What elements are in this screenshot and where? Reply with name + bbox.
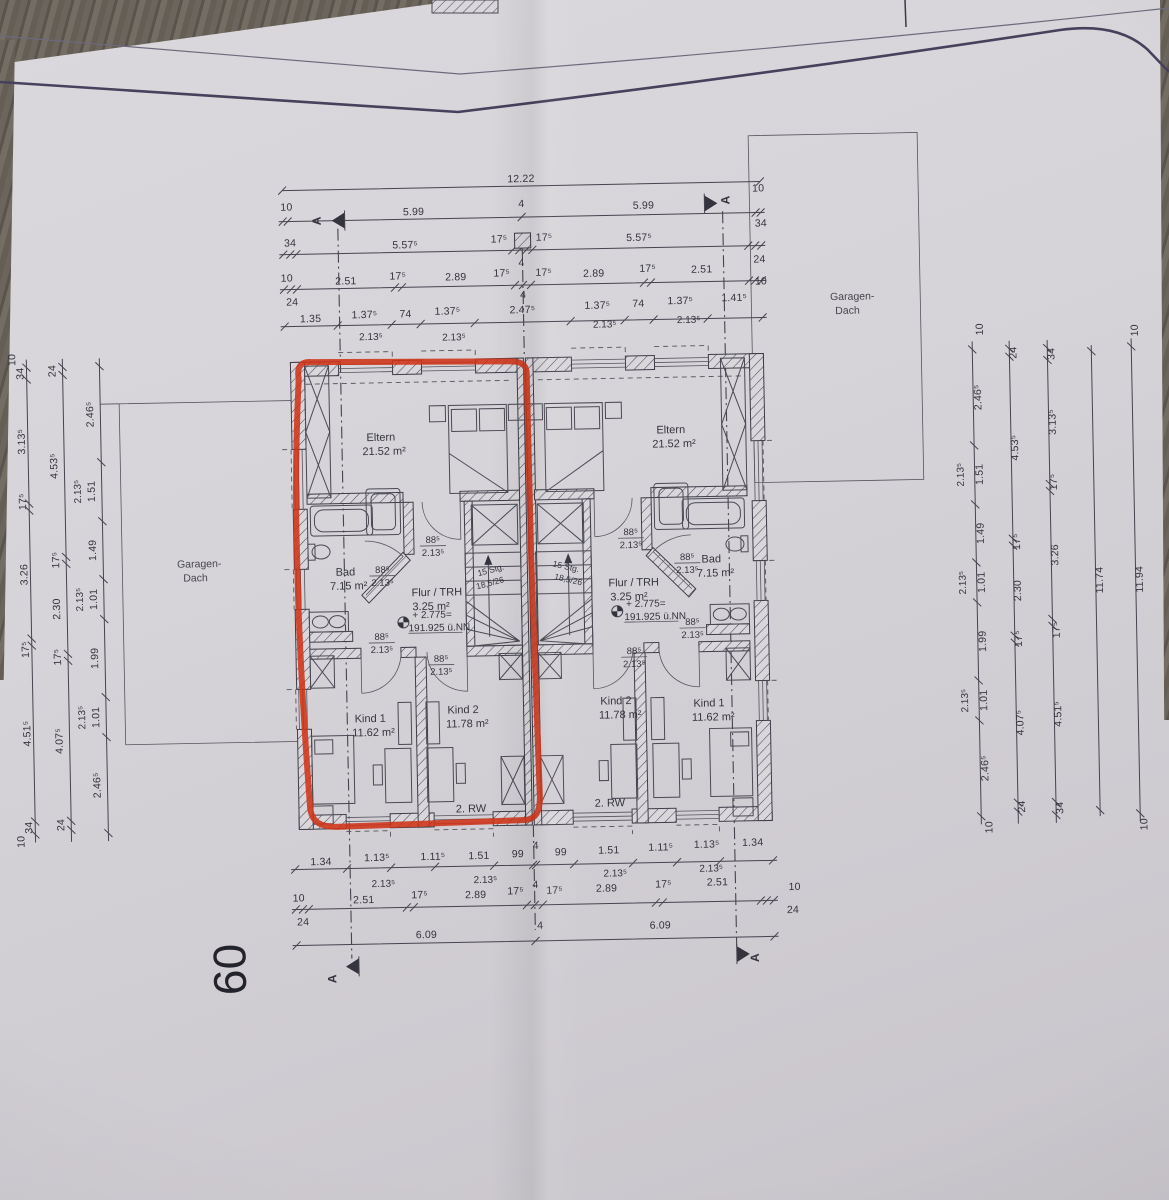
dim-label: 10	[1129, 324, 1141, 336]
dim-label: 1.11⁵	[648, 841, 673, 853]
handwritten-number: 09	[204, 943, 257, 995]
room-name: Kind 2	[600, 695, 631, 708]
room-area: 21.52 m²	[362, 445, 406, 458]
door-width: 88⁵	[374, 632, 389, 643]
door-height: 2.13⁵	[681, 630, 704, 641]
dim-label: 11.74	[1093, 567, 1106, 594]
dim-label: 34	[1045, 348, 1057, 360]
dim-label: 4.51⁵	[1052, 701, 1064, 727]
dim-label: 2.51	[335, 275, 356, 287]
dimension-labels-left: 34 3.13⁵ 17⁵ 3.26 17⁵ 4.51⁵ 34 24 4.53⁵ …	[6, 352, 104, 848]
dim-label: 10	[788, 881, 800, 893]
dim-label: 1.35	[300, 313, 321, 325]
dim-label: 1.99	[89, 648, 101, 669]
dim-label: 5.57⁵	[626, 232, 652, 244]
room-name: Kind 1	[693, 697, 724, 710]
door-height: 2.13⁵	[371, 578, 394, 589]
dim-label: 10	[752, 182, 764, 194]
dim-label: 10	[293, 892, 305, 904]
dim-label: 34	[23, 821, 35, 833]
dim-label: 1.41⁵	[721, 292, 747, 304]
dim-label: 17⁵	[1048, 473, 1060, 490]
dim-label: 17⁵	[17, 493, 29, 510]
dim-label: 17⁵	[491, 233, 508, 245]
dim-label: 2.30	[51, 598, 63, 619]
dim-label: 4	[520, 289, 526, 301]
dim-sublabel: 2.13⁵	[958, 571, 969, 595]
dim-label: 74	[632, 298, 644, 310]
dim-label: 24	[1016, 800, 1028, 812]
dim-label: 4.07⁵	[53, 728, 65, 754]
dim-label: 17⁵	[493, 267, 510, 279]
dim-label: 1.37⁵	[667, 295, 693, 307]
dim-label: 6.09	[650, 919, 671, 931]
plan: Garagen- Dach Garagen- Dach	[2, 128, 1153, 999]
dim-label: 1.11⁵	[420, 851, 445, 863]
room-area: 11.78 m²	[599, 709, 642, 722]
sheet-edge-lines	[0, 0, 1169, 112]
rw-label: 2. RW	[456, 803, 487, 816]
dim-label: 1.01	[978, 690, 990, 711]
dim-label: 1.37⁵	[434, 305, 460, 317]
dim-label: 4.53⁵	[48, 453, 60, 479]
dim-sublabel: 2.13⁵	[372, 879, 396, 890]
dim-label: 1.13⁵	[364, 852, 390, 864]
photo-of-floorplan: Garagen- Dach Garagen- Dach	[0, 0, 1169, 1200]
dim-label: 10	[6, 354, 18, 366]
door-width: 88⁵	[434, 654, 449, 665]
room-area: 11.78 m²	[446, 718, 489, 731]
dim-label: 5.57⁵	[392, 239, 418, 251]
dim-label: 1.51	[973, 464, 985, 485]
section-marker-label: A	[310, 216, 324, 225]
dim-label: 1.01	[88, 589, 100, 610]
room-area: 11.62 m²	[692, 711, 735, 724]
door-width: 88⁵	[685, 617, 700, 628]
dim-sublabel: 2.13⁵	[473, 875, 497, 886]
dim-sublabel: 2.13⁵	[77, 706, 88, 730]
dim-label: 34	[284, 237, 296, 249]
dim-label: 17⁵	[639, 263, 656, 275]
room-name: Bad	[336, 566, 356, 578]
garage-roof-label: Dach	[835, 305, 860, 317]
dim-sublabel: 2.13⁵	[603, 868, 627, 879]
dim-sublabel: 2.13⁵	[442, 332, 466, 343]
dim-label: 2.46⁵	[979, 755, 991, 781]
dim-label: 17⁵	[389, 270, 406, 282]
dim-label: 2.89	[465, 889, 486, 901]
dim-label: 4.53⁵	[1009, 435, 1021, 461]
dim-label: 12.22	[507, 173, 535, 186]
dim-label: 24	[46, 365, 58, 377]
dim-label: 17⁵	[52, 649, 64, 666]
dim-label: 11.94	[1133, 566, 1146, 593]
dim-label: 17⁵	[1011, 533, 1023, 550]
room-name: Bad	[701, 553, 721, 565]
dim-label: 2.89	[445, 271, 466, 283]
dim-label: 2.51	[353, 894, 374, 906]
dim-label: 4	[533, 840, 539, 852]
room-name: Kind 2	[447, 704, 478, 717]
door-height: 2.13⁵	[371, 645, 394, 656]
dim-label: 1.13⁵	[694, 838, 720, 850]
door-width: 88⁵	[623, 527, 638, 538]
dim-label: 17⁵	[1051, 621, 1063, 638]
dim-label: 24	[297, 916, 309, 928]
dim-label: 6.09	[416, 929, 437, 941]
dim-label: 3.13⁵	[16, 429, 28, 455]
dim-label: 5.99	[403, 206, 424, 218]
dim-label: 10	[1138, 818, 1150, 830]
garage-roof-label: Dach	[183, 572, 208, 584]
dim-label: 1.34	[310, 856, 331, 868]
dim-label: 34	[1054, 802, 1066, 814]
garage-roof-label: Garagen-	[830, 290, 875, 303]
door-height: 2.13⁵	[430, 666, 453, 677]
door-width: 88⁵	[680, 552, 695, 563]
dim-label: 2.30	[1012, 580, 1024, 601]
dim-label: 1.51	[598, 844, 619, 856]
dim-label: 1.01	[90, 707, 102, 728]
dim-label: 5.99	[633, 200, 654, 212]
room-name: Eltern	[656, 424, 685, 437]
floorplan-drawing: Garagen- Dach Garagen- Dach	[0, 0, 1169, 1200]
dim-label: 17⁵	[411, 889, 428, 901]
dim-label: 74	[399, 308, 411, 320]
dim-label: 3.26	[18, 564, 30, 585]
dim-label: 4.07⁵	[1014, 710, 1026, 736]
dim-label: 1.49	[975, 523, 987, 544]
door-height: 2.13⁵	[623, 659, 646, 670]
dim-label: 2.46⁵	[84, 401, 96, 427]
room-name: Kind 1	[355, 713, 386, 726]
dim-label: 17⁵	[50, 552, 62, 569]
dim-label: 1.49	[87, 540, 99, 561]
dim-label: 2.47⁵	[509, 304, 535, 316]
dim-label: 17⁵	[655, 878, 672, 890]
room-name: Eltern	[366, 432, 395, 445]
door-height: 2.13⁵	[620, 540, 643, 551]
dim-label: 1.37⁵	[351, 309, 377, 321]
dim-sublabel: 2.13⁵	[75, 588, 86, 612]
dim-label: 1.99	[977, 631, 989, 652]
dim-label: 17⁵	[1013, 630, 1025, 647]
dim-sublabel: 2.13⁵	[960, 689, 971, 713]
door-width: 88⁵	[425, 535, 440, 546]
dim-label: 2.89	[583, 267, 604, 279]
rw-label: 2. RW	[595, 797, 626, 810]
door-width: 88⁵	[375, 565, 390, 576]
dim-sublabel: 2.13⁵	[73, 480, 84, 504]
dim-label: 99	[555, 846, 567, 858]
dim-label: 2.89	[596, 882, 617, 894]
door-height: 2.13⁵	[676, 565, 699, 576]
dim-label: 10	[974, 323, 986, 335]
dim-label: 24	[787, 904, 799, 916]
dim-label: 34	[14, 368, 26, 380]
room-area: 3.25 m²	[412, 601, 450, 614]
dim-label: 4	[518, 198, 524, 210]
room-name: Flur / TRH	[608, 577, 659, 590]
dimension-labels-bottom: 1.34 1.13⁵ 1.11⁵ 1.51 99 4 99 1.51 1.11⁵…	[292, 835, 802, 944]
section-marker-label: A	[748, 953, 762, 962]
dim-label: 99	[512, 848, 524, 860]
dim-label: 2.51	[707, 876, 728, 888]
room-area: 7.15 m²	[697, 567, 735, 580]
dim-label: 4	[532, 879, 538, 891]
dim-label: 2.46⁵	[91, 772, 103, 798]
room-area: 21.52 m²	[652, 438, 696, 451]
dim-label: 10	[281, 272, 293, 284]
dim-label: 24	[1007, 346, 1019, 358]
dim-label: 10	[755, 275, 767, 287]
dim-sublabel: 2.13⁵	[677, 315, 701, 326]
dim-label: 4	[518, 257, 524, 269]
dim-label: 10	[280, 201, 292, 213]
dim-label: 17⁵	[507, 885, 524, 897]
room-name: Flur / TRH	[411, 586, 462, 599]
section-marker-label: A	[325, 974, 339, 983]
dim-label: 17⁵	[20, 641, 32, 658]
dim-label: 17⁵	[535, 266, 552, 278]
dim-label: 24	[286, 296, 298, 308]
dim-label: 17⁵	[536, 231, 553, 243]
section-marker-label: A	[718, 195, 732, 204]
dim-label: 1.51	[86, 481, 98, 502]
dim-sublabel: 2.13⁵	[593, 319, 617, 330]
dim-label: 1.34	[742, 837, 763, 849]
dim-sublabel: 2.13⁵	[699, 863, 723, 874]
dim-label: 2.46⁵	[972, 384, 984, 410]
dim-label: 34	[755, 217, 767, 229]
dim-label: 4.51⁵	[21, 721, 33, 747]
dim-label: 1.01	[976, 572, 988, 593]
dim-label: 4	[537, 920, 543, 932]
dim-label: 1.51	[468, 850, 489, 862]
dim-label: 24	[753, 253, 765, 265]
room-area: 3.25 m²	[610, 591, 648, 604]
room-area: 7.15 m²	[330, 580, 368, 593]
dim-sublabel: 2.13⁵	[955, 463, 966, 487]
dim-label: 3.13⁵	[1046, 409, 1058, 435]
dim-label: 10	[983, 821, 995, 833]
dim-label: 2.51	[691, 263, 712, 275]
dim-sublabel: 2.13⁵	[359, 332, 383, 343]
dim-label: 24	[55, 819, 67, 831]
dim-label: 1.37⁵	[584, 299, 610, 311]
dim-label: 10	[15, 836, 27, 848]
dim-label: 17⁵	[546, 884, 563, 896]
garage-roof-label: Garagen-	[177, 558, 222, 571]
door-height: 2.13⁵	[422, 548, 445, 559]
room-area: 11.62 m²	[352, 727, 395, 740]
dim-label: 3.26	[1049, 544, 1061, 565]
door-width: 88⁵	[627, 646, 642, 657]
